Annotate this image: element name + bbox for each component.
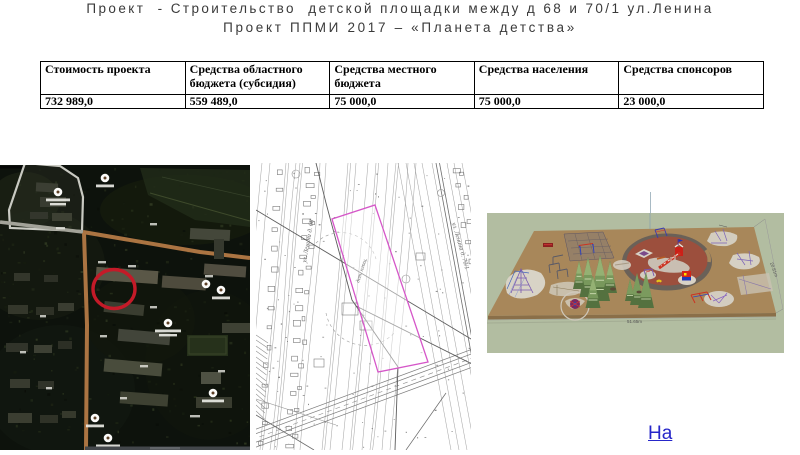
svg-text:51.65m: 51.65m (627, 319, 642, 324)
